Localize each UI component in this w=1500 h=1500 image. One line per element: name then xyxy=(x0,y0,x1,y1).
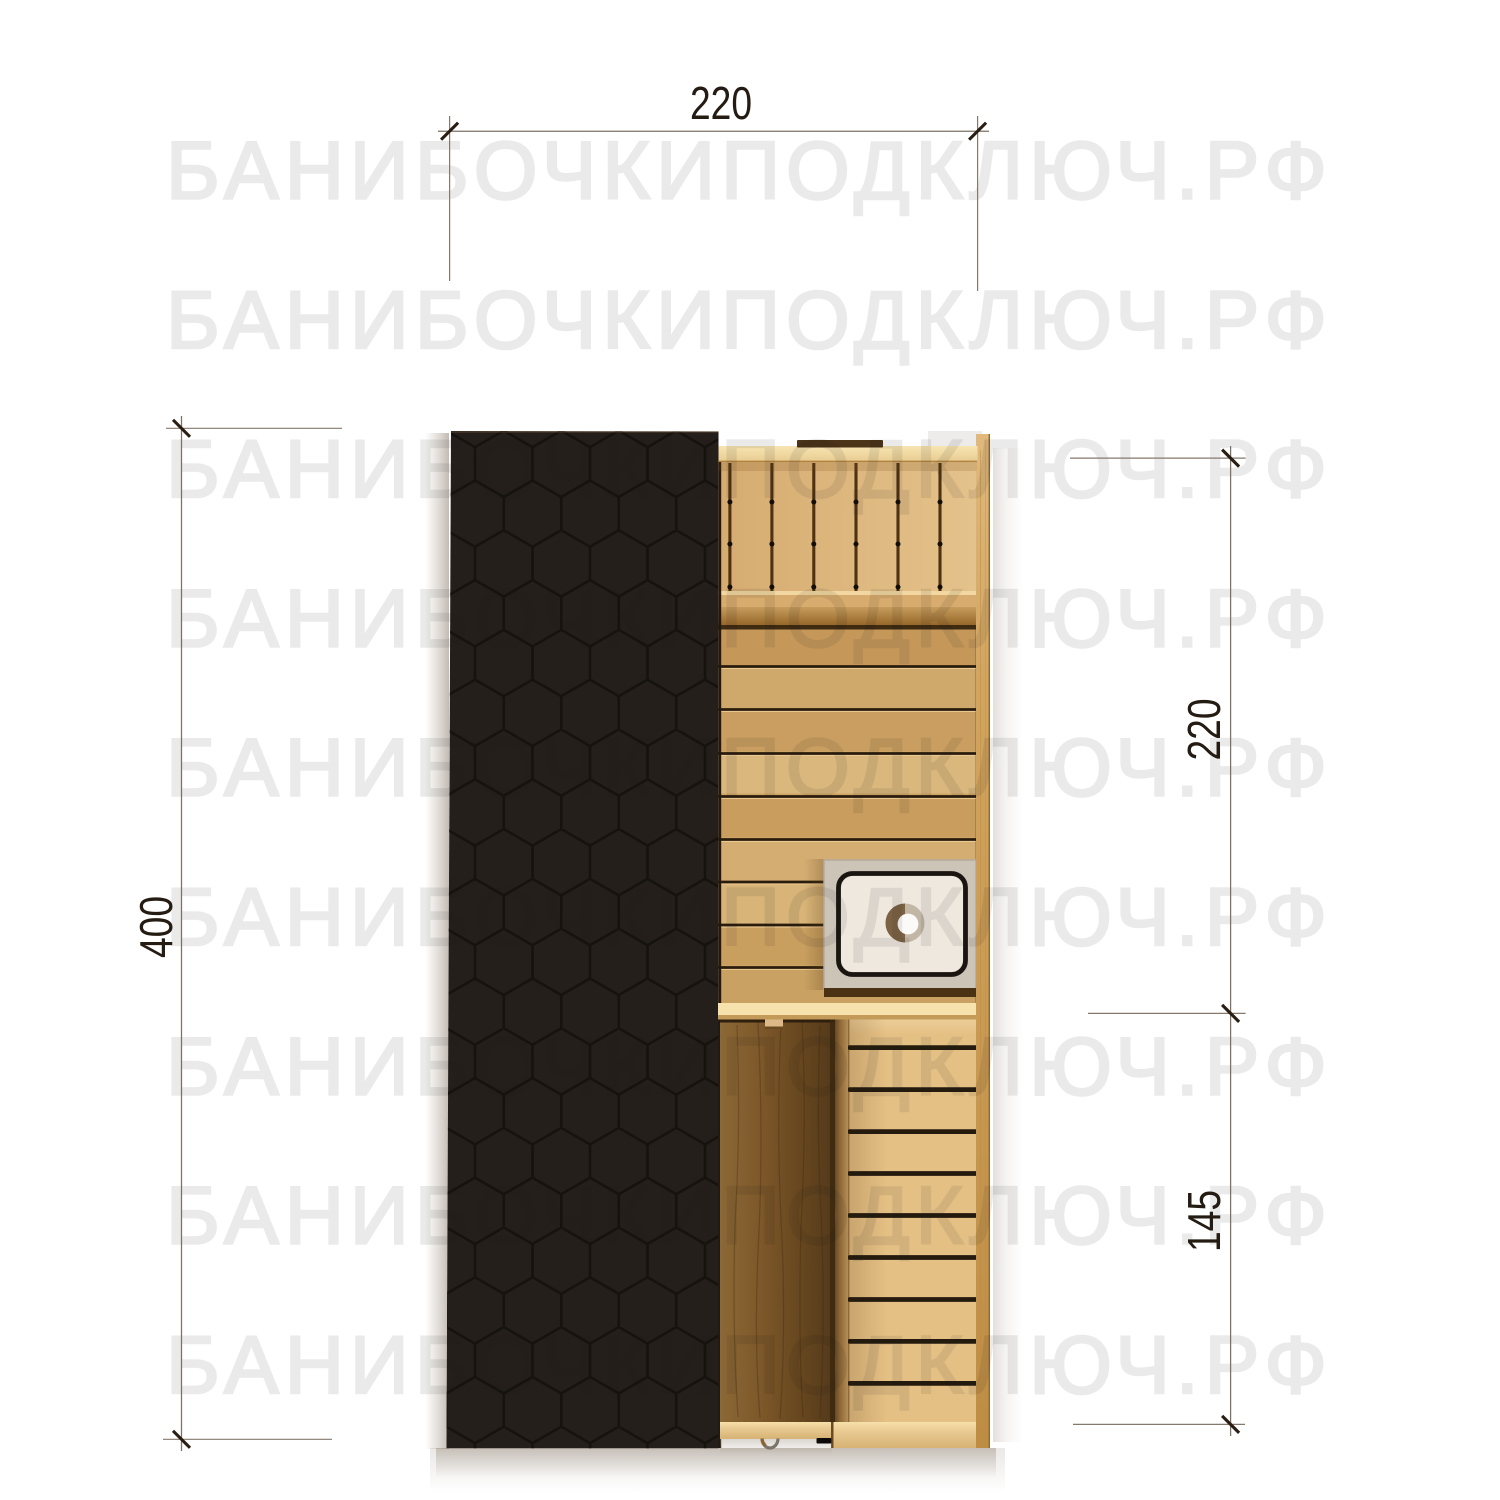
svg-text:145: 145 xyxy=(1178,1190,1230,1252)
svg-text:БАНИБОЧКИПОДКЛЮЧ.РФ: БАНИБОЧКИПОДКЛЮЧ.РФ xyxy=(166,1171,1333,1262)
svg-text:220: 220 xyxy=(690,77,752,129)
svg-text:220: 220 xyxy=(1178,698,1230,760)
svg-text:400: 400 xyxy=(130,896,182,958)
svg-text:БАНИБОЧКИПОДКЛЮЧ.РФ: БАНИБОЧКИПОДКЛЮЧ.РФ xyxy=(166,126,1333,217)
svg-text:БАНИБОЧКИПОДКЛЮЧ.РФ: БАНИБОЧКИПОДКЛЮЧ.РФ xyxy=(166,275,1333,366)
svg-text:БАНИБОЧКИПОДКЛЮЧ.РФ: БАНИБОЧКИПОДКЛЮЧ.РФ xyxy=(166,723,1333,814)
svg-text:БАНИБОЧКИПОДКЛЮЧ.РФ: БАНИБОЧКИПОДКЛЮЧ.РФ xyxy=(166,424,1333,515)
svg-text:БАНИБОЧКИПОДКЛЮЧ.РФ: БАНИБОЧКИПОДКЛЮЧ.РФ xyxy=(166,1320,1333,1411)
svg-text:БАНИБОЧКИПОДКЛЮЧ.РФ: БАНИБОЧКИПОДКЛЮЧ.РФ xyxy=(166,573,1333,664)
svg-text:БАНИБОЧКИПОДКЛЮЧ.РФ: БАНИБОЧКИПОДКЛЮЧ.РФ xyxy=(166,1021,1333,1112)
svg-text:БАНИБОЧКИПОДКЛЮЧ.РФ: БАНИБОЧКИПОДКЛЮЧ.РФ xyxy=(166,872,1333,963)
